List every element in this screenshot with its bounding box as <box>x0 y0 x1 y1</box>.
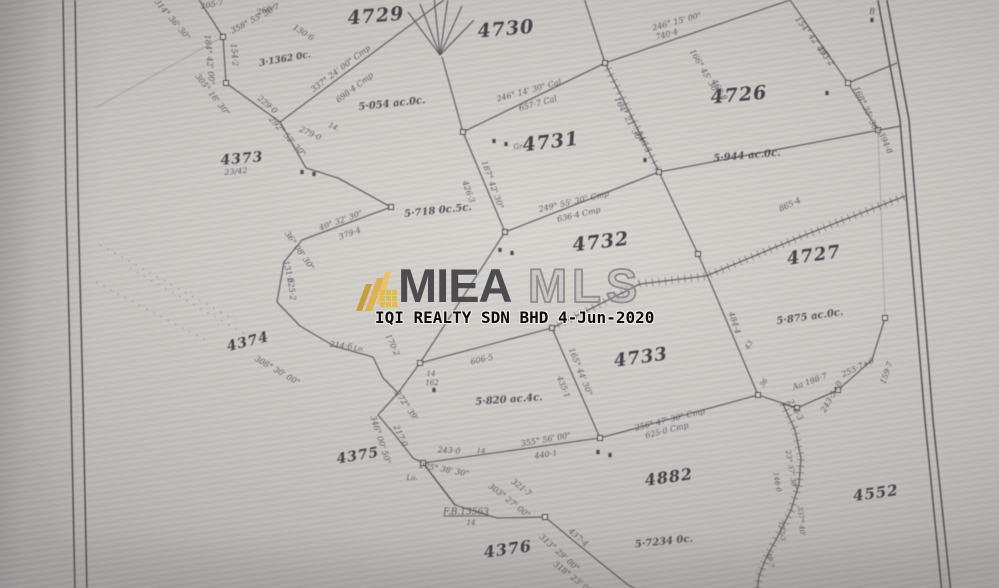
boundary-stone-mark <box>870 18 873 22</box>
lot-number-label: 4730 <box>477 16 536 43</box>
survey-station-mark <box>756 393 761 398</box>
survey-station-mark <box>657 170 662 175</box>
vegetation-dotted-line <box>130 268 252 338</box>
boundary-line <box>583 0 605 63</box>
bearing-distance-annotation: 379·4 <box>338 225 363 241</box>
mls-wordmark: MLS <box>528 262 642 309</box>
bearing-distance-annotation: 14 <box>476 447 485 455</box>
bearing-distance-annotation: 865·4 <box>778 196 803 214</box>
bearing-distance-annotation: 426·3 <box>460 179 477 205</box>
boundary-line <box>463 63 605 132</box>
map-sheet-border <box>886 0 951 588</box>
bearing-distance-annotation: 484·4 <box>726 310 742 336</box>
boundary-line <box>398 363 420 393</box>
survey-station-mark <box>389 205 394 210</box>
survey-station-mark <box>418 361 423 366</box>
bearing-distance-annotation: 217·0 <box>391 423 409 448</box>
survey-station-mark <box>224 81 229 86</box>
boundary-stone-mark <box>825 91 828 95</box>
bearing-distance-annotation: 275° 38' 30" <box>417 461 469 479</box>
lot-number-label: 4882 <box>644 464 695 490</box>
bearing-distance-annotation: Aa 198·7 <box>790 371 829 392</box>
bearing-distance-annotation: 698·4 Cmp <box>334 71 375 105</box>
boundary-stone-mark <box>643 158 646 162</box>
vegetation-dotted-line <box>100 245 235 320</box>
bearing-distance-annotation: Lo. <box>352 344 365 353</box>
bearing-distance-annotation: 314° 36' 30" <box>153 0 192 42</box>
bearing-distance-annotation: 131·6 <box>281 260 296 284</box>
miea-logo-icon <box>352 264 398 314</box>
watermark-caption: IQI REALTY SDN BHD 4-Jun-2020 <box>375 308 654 327</box>
bearing-distance-annotation: 23° 57' 30" <box>783 449 798 491</box>
bearing-distance-annotation: 321·7 <box>510 477 534 499</box>
survey-station-mark <box>461 130 466 135</box>
lot-area-label: 5·7234 0c. <box>634 533 693 550</box>
boundary-line <box>757 404 801 588</box>
boundary-stone-mark <box>596 450 599 454</box>
boundary-stone-mark <box>498 248 501 252</box>
survey-station-mark <box>221 35 226 40</box>
vegetation-dotted-line <box>96 282 205 340</box>
lot-area-label: 3·1362 0c. <box>258 50 311 69</box>
boundary-tick-line <box>757 404 801 588</box>
bearing-distance-annotation: 152·3 <box>777 521 787 542</box>
bearing-distance-annotation: 14 <box>427 370 436 378</box>
bearing-distance-annotation: 272° 39' <box>392 388 420 422</box>
bearing-distance-annotation: 159·7 <box>878 360 895 385</box>
boundary-line <box>878 130 885 318</box>
lot-number-label: 4733 <box>613 343 670 371</box>
lot-area-label: 5·944 ac.0c. <box>713 148 781 165</box>
lot-number-label: 4375 <box>335 444 380 467</box>
boundary-stone-mark <box>492 139 495 143</box>
bearing-distance-annotation: 308° 30' 00" <box>253 354 301 387</box>
bearing-distance-annotation: 130·6 <box>291 23 315 43</box>
lot-number-label: 4552 <box>852 481 900 505</box>
survey-station-mark <box>598 436 603 441</box>
bearing-distance-annotation: 168° 35' 30" <box>852 85 882 135</box>
bearing-distance-annotation: 49·7 <box>765 551 776 569</box>
bearing-distance-annotation: F.B.13563 <box>442 508 489 518</box>
survey-station-mark <box>846 81 851 86</box>
bearing-distance-annotation: 214·6 <box>328 340 353 351</box>
bearing-distance-annotation: 162 <box>425 379 439 387</box>
lot-number-label: 4729 <box>347 3 406 30</box>
miea-wordmark: MIEA <box>398 262 512 309</box>
bearing-distance-annotation: 43 <box>743 339 755 352</box>
bearing-distance-annotation: Lo. <box>406 474 418 482</box>
bearing-distance-annotation: 36 <box>758 377 770 389</box>
bearing-distance-annotation: 433·2 <box>814 43 836 67</box>
map-sheet-border <box>63 0 75 588</box>
lot-number-label: 4727 <box>786 241 843 269</box>
bearing-distance-annotation: 435·1 <box>555 374 572 400</box>
survey-station-mark <box>696 252 701 257</box>
boundary-line <box>708 277 758 395</box>
lot-area-label: 5·718 0c.5c. <box>404 202 473 220</box>
bearing-distance-annotation: Gr <box>514 143 524 151</box>
watermark: MIEA MLS IQI REALTY SDN BHD 4-Jun-2020 <box>352 262 672 334</box>
boundary-stone-mark <box>504 142 507 146</box>
map-sheet-border <box>75 0 87 588</box>
boundary-stone-mark <box>608 453 611 457</box>
bearing-distance-annotation: B <box>868 7 875 16</box>
bearing-distance-annotation: 279·0 <box>297 124 322 142</box>
survey-station-mark <box>503 230 508 235</box>
boundary-line <box>442 57 463 132</box>
boundary-line <box>95 37 223 108</box>
scanned-survey-plan: 4729473047264731473247274733437323/42437… <box>0 0 999 588</box>
bearing-distance-annotation: 657·7 Cal <box>518 94 558 113</box>
bearing-distance-annotation: 440·1 <box>533 448 558 460</box>
lot-number-label: 4374 <box>225 329 271 355</box>
survey-station-mark <box>883 316 888 321</box>
bearing-distance-annotation: 14. <box>327 121 340 133</box>
bearing-distance-annotation: 23/42 <box>223 166 248 177</box>
bearing-distance-annotation: 170·2 <box>384 333 402 358</box>
boundary-line <box>423 463 645 588</box>
bearing-distance-annotation: 337° 40' <box>796 506 807 537</box>
bearing-distance-annotation: 243·0 <box>436 445 460 455</box>
lot-area-label: 5·820 ac.4c. <box>475 392 543 408</box>
bearing-distance-annotation: 205·7 <box>199 0 225 11</box>
boundary-line <box>440 20 474 55</box>
lot-area-label: 5·875 ac.0c. <box>776 307 844 327</box>
boundary-line <box>659 172 698 254</box>
boundary-stone-mark <box>432 388 435 392</box>
bearing-distance-annotation: 14 <box>467 519 476 527</box>
bearing-distance-annotation: 606·5 <box>470 353 494 367</box>
lot-number-label: 4731 <box>521 128 580 157</box>
boundary-stone-mark <box>300 170 303 174</box>
boundary-line <box>408 12 440 55</box>
bearing-distance-annotation: 146·0 <box>771 471 782 493</box>
bearing-distance-annotation: 253·7+0 <box>839 356 875 379</box>
survey-station-mark <box>603 61 608 66</box>
bearing-distance-annotation: 292° 52' 30" <box>266 114 307 158</box>
lot-number-label: 4732 <box>571 228 630 257</box>
boundary-stone-mark <box>510 251 513 255</box>
boundary-line <box>848 63 897 83</box>
boundary-stone-mark <box>312 172 315 176</box>
lot-area-label: 5·054 ac.0c. <box>358 95 426 113</box>
survey-station-mark <box>543 515 548 520</box>
boundary-line <box>698 254 708 277</box>
bearing-distance-annotation: 154·2 <box>229 43 240 67</box>
lot-number-label: 4376 <box>483 536 534 562</box>
